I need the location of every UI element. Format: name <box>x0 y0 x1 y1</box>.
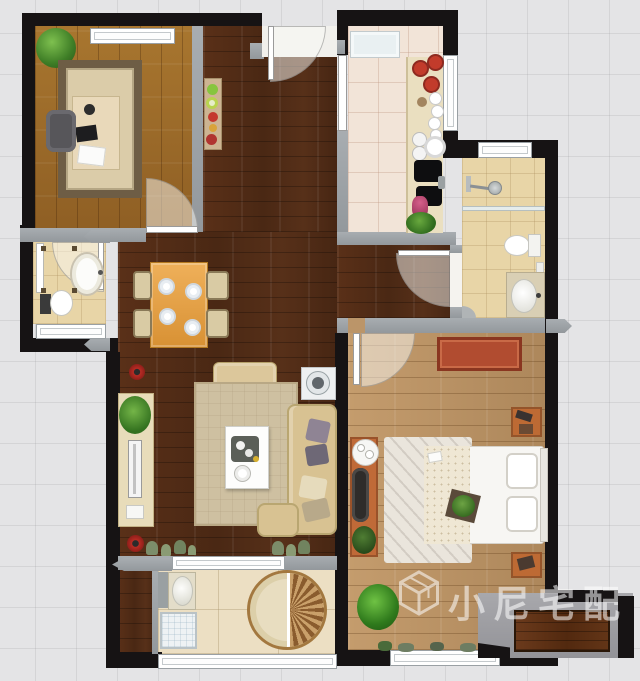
tray-candle <box>253 456 259 462</box>
desk-papers <box>77 144 106 166</box>
entry-door-leaf <box>268 26 274 80</box>
shower-head <box>488 181 502 195</box>
kitchen-faucet <box>438 176 445 189</box>
wall-top-left <box>22 13 262 26</box>
floor-grass-right <box>272 541 284 555</box>
toilet-bowl-main <box>504 235 530 256</box>
frame-post-2 <box>72 246 77 251</box>
smallbath-window <box>36 324 106 339</box>
sill-plant-4 <box>460 643 476 652</box>
nightstand-top-book <box>519 424 533 434</box>
desk-laptop <box>75 125 98 143</box>
bedroom-chair <box>352 468 369 522</box>
toilet-tank-main <box>528 234 541 257</box>
pillow-2 <box>506 496 538 532</box>
wall-mainbath-left-a <box>450 245 462 253</box>
refrigerator <box>350 31 400 58</box>
tv-screen-line <box>133 444 136 494</box>
dining-chair-2 <box>133 309 152 338</box>
wall-bottom-left <box>106 652 162 668</box>
plate-setting-3 <box>159 308 176 325</box>
bed-plant <box>452 495 475 517</box>
plate-setting-2 <box>185 283 202 300</box>
wall-kitchen-bottom <box>337 232 456 245</box>
wall-balcony-top-b <box>285 556 337 570</box>
vanity-basin <box>511 279 537 313</box>
wall-smallbath-left <box>20 225 33 352</box>
wall-top-right <box>337 10 458 26</box>
sill-plant-3 <box>430 642 444 651</box>
study-door-leaf <box>146 226 198 233</box>
kitchen-sink <box>424 136 446 158</box>
frame-post-3 <box>41 288 46 293</box>
wall-kitchen-left <box>337 130 348 232</box>
kitchen-plant <box>406 212 436 234</box>
dining-table <box>150 262 208 348</box>
bedroom-door-opening <box>348 318 365 333</box>
pillow-gray-2 <box>305 443 330 466</box>
sill-plant-2 <box>398 643 414 652</box>
wall-right-upper <box>545 140 558 333</box>
red-pot-3 <box>423 76 440 93</box>
table-clock <box>234 465 251 482</box>
kitchen-window <box>443 55 458 131</box>
mainbath-door-leaf <box>398 250 450 256</box>
tea-cup-2 <box>365 450 374 459</box>
floorplan-canvas: 小尼宅配 <box>0 0 640 681</box>
red-dresser <box>437 337 522 371</box>
washing-machine <box>160 612 197 649</box>
wall-mainbath-left-b <box>450 307 462 318</box>
dish-1 <box>429 92 442 105</box>
floor-grass-left <box>146 541 158 555</box>
office-chair <box>46 110 76 152</box>
bedroom-door-leaf <box>353 333 360 385</box>
watermark-cube-logo <box>396 570 442 616</box>
tray-cup-2 <box>245 449 253 457</box>
pillow-1 <box>506 453 538 489</box>
hall-decor-yellow <box>209 124 217 132</box>
hall-decor-ring <box>206 97 218 109</box>
pillow-gray-1 <box>305 418 331 444</box>
fan-center <box>312 377 324 389</box>
kitchen-sliding-door <box>338 55 347 131</box>
wall-corridor-bottom-a <box>337 318 348 333</box>
plate-setting-4 <box>184 319 201 336</box>
watermark-text: 小尼宅配 <box>448 574 628 628</box>
hall-decor-red <box>208 112 218 122</box>
toilet-bowl-small <box>50 290 73 316</box>
tray-cup-1 <box>236 441 245 450</box>
mainbath-window <box>478 142 532 158</box>
desk-cup <box>84 104 95 115</box>
sill-plant-1 <box>378 641 392 651</box>
sofa-chaise <box>257 503 299 537</box>
hall-decor-green <box>207 84 218 95</box>
bedroom-floor-plant <box>357 584 399 630</box>
mainbath-door-opening <box>450 253 462 307</box>
living-floor-strip <box>118 568 155 654</box>
hall-decor-red2 <box>206 134 217 145</box>
dish-bowl <box>417 97 427 107</box>
vanity-plant <box>352 526 376 554</box>
living-balcony-window <box>172 556 285 570</box>
dining-chair-1 <box>133 271 152 300</box>
corner-flower-top <box>129 364 145 380</box>
wall-study-hall-divider <box>192 26 203 232</box>
plate-setting-1 <box>158 278 175 295</box>
glass-partition <box>462 206 545 211</box>
wall-study-left <box>22 13 35 232</box>
tv-cabinet-plant <box>119 396 151 434</box>
study-window <box>90 28 175 44</box>
corner-flower-bottom <box>127 535 144 552</box>
wall-cap-balcony <box>112 558 172 571</box>
laundry-basin <box>172 576 193 606</box>
wall-corridor-bottom-b <box>365 318 545 333</box>
red-pot-2 <box>427 54 444 71</box>
basin-faucet <box>536 293 541 298</box>
wall-cap-bedroom <box>546 319 572 333</box>
frame-post-4 <box>72 288 77 293</box>
dining-chair-4 <box>206 309 229 338</box>
frame-post-1 <box>41 246 46 251</box>
tea-cup-1 <box>357 444 365 452</box>
balcony-window-wall <box>158 654 337 669</box>
headboard <box>540 448 548 542</box>
tub-drain <box>98 270 103 275</box>
tv-cabinet-item <box>126 505 144 519</box>
dining-chair-3 <box>206 271 229 300</box>
wall-study-bottom <box>20 228 146 242</box>
